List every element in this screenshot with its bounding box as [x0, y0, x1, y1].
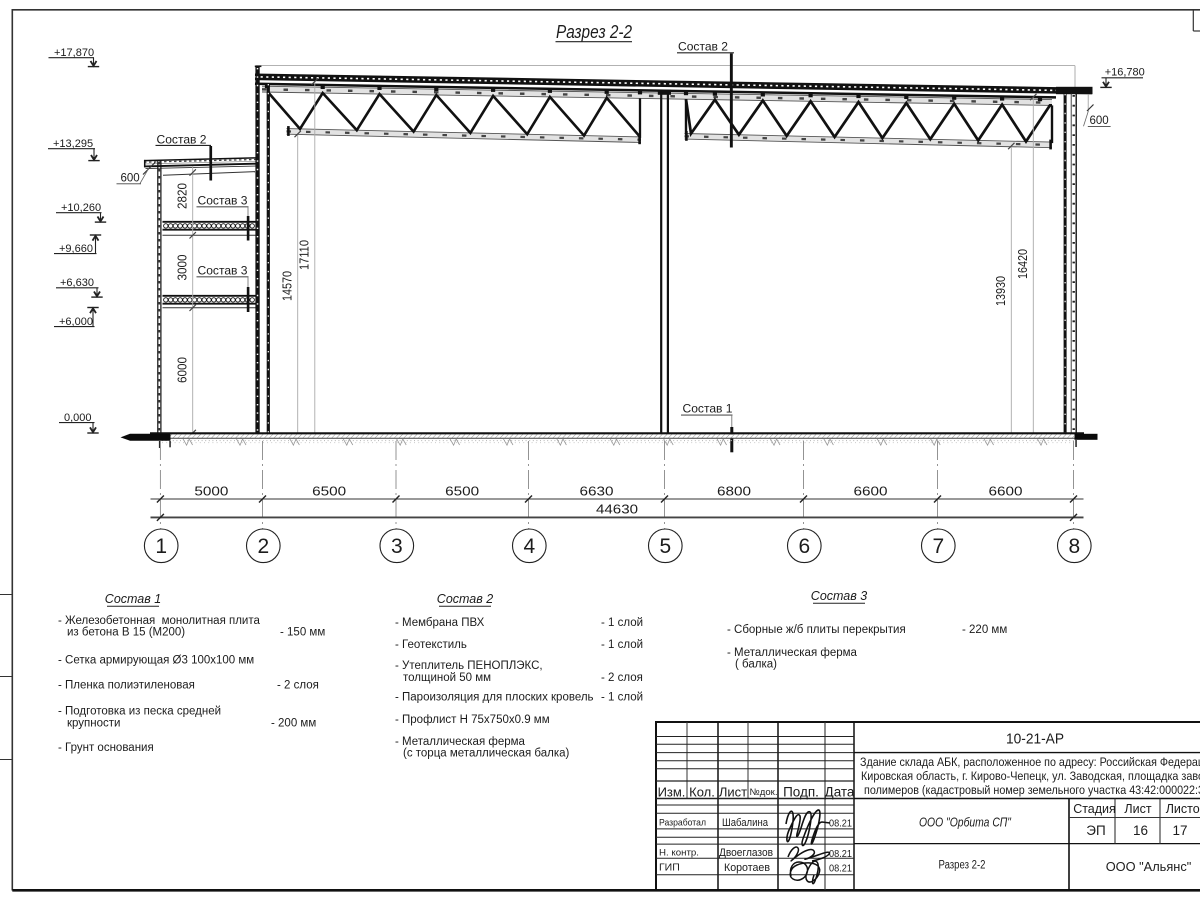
svg-text:Состав 3: Состав 3 — [811, 589, 867, 603]
svg-text:Стадия: Стадия — [1073, 802, 1116, 816]
svg-text:Разрез 2-2: Разрез 2-2 — [556, 21, 633, 42]
svg-text:- 220 мм: - 220 мм — [962, 624, 1007, 636]
svg-text:Двоеглазов: Двоеглазов — [719, 847, 773, 859]
svg-text:- Сетка армирующая Ø3 100х100: - Сетка армирующая Ø3 100х100 мм — [58, 655, 254, 667]
svg-text:- Сборные ж/б плиты перекрытия: - Сборные ж/б плиты перекрытия — [727, 624, 906, 636]
svg-text:- Утеплитель ПЕНОПЛЭКС,: - Утеплитель ПЕНОПЛЭКС, — [395, 660, 543, 672]
svg-text:6500: 6500 — [312, 483, 346, 498]
svg-text:ООО "Орбита СП": ООО "Орбита СП" — [919, 815, 1012, 830]
svg-text:- 1 слой: - 1 слой — [601, 639, 643, 651]
svg-text:2820: 2820 — [176, 183, 190, 209]
svg-text:08.21: 08.21 — [829, 848, 852, 860]
svg-text:- 2 слоя: - 2 слоя — [601, 672, 643, 684]
svg-text:- Железобетонная монолитная п: - Железобетонная монолитная плита — [58, 615, 260, 627]
svg-text:16: 16 — [1133, 823, 1148, 838]
svg-text:Состав 1: Состав 1 — [683, 402, 733, 416]
svg-text:Кол.: Кол. — [689, 785, 715, 800]
svg-text:600: 600 — [121, 173, 140, 185]
svg-text:толщиной 50 мм: толщиной 50 мм — [403, 672, 491, 684]
svg-text:( балка): ( балка) — [735, 659, 777, 671]
svg-text:7: 7 — [932, 535, 944, 558]
svg-text:Состав 2: Состав 2 — [678, 40, 728, 54]
svg-text:16420: 16420 — [1016, 249, 1030, 279]
svg-text:- 150 мм: - 150 мм — [280, 627, 325, 639]
svg-text:Разрез 2-2: Разрез 2-2 — [939, 860, 986, 872]
svg-text:- 200 мм: - 200 мм — [271, 718, 316, 730]
svg-text:Кировская область, г. Кирово-Ч: Кировская область, г. Кирово-Чепецк, ул.… — [861, 769, 1200, 783]
svg-text:Разработал: Разработал — [659, 818, 706, 829]
svg-text:Подп.: Подп. — [783, 785, 819, 800]
svg-text:14570: 14570 — [280, 271, 294, 301]
svg-text:Лист: Лист — [719, 785, 747, 800]
svg-text:8: 8 — [1068, 535, 1080, 558]
svg-text:6600: 6600 — [854, 483, 888, 498]
svg-text:- Пароизоляция для плоских кро: - Пароизоляция для плоских кровель — [395, 692, 594, 704]
svg-text:Изм.: Изм. — [658, 785, 686, 800]
svg-text:- Подготовка из песка средней: - Подготовка из песка средней — [58, 706, 221, 718]
svg-text:6630: 6630 — [580, 483, 614, 498]
svg-text:6800: 6800 — [717, 483, 751, 498]
svg-text:6000: 6000 — [176, 357, 190, 383]
svg-text:08.21: 08.21 — [829, 863, 852, 875]
svg-text:13930: 13930 — [994, 276, 1008, 306]
svg-text:- Металлическая ферма: - Металлическая ферма — [395, 736, 526, 748]
svg-text:- Грунт основания: - Грунт основания — [58, 742, 154, 754]
svg-text:полимеров (кадастровый номер з: полимеров (кадастровый номер земельного … — [864, 783, 1200, 797]
svg-text:6: 6 — [798, 535, 810, 558]
svg-text:- 1 слой: - 1 слой — [601, 617, 643, 629]
svg-text:3: 3 — [391, 535, 403, 558]
svg-text:6600: 6600 — [989, 483, 1023, 498]
svg-text:17: 17 — [1172, 823, 1187, 838]
svg-text:Лист: Лист — [1124, 802, 1151, 816]
svg-text:Состав 2: Состав 2 — [437, 592, 493, 606]
svg-text:Состав 1: Состав 1 — [105, 592, 161, 606]
svg-text:Листов: Листов — [1166, 802, 1200, 816]
svg-text:08.21: 08.21 — [829, 818, 852, 830]
svg-text:Коротаев: Коротаев — [724, 862, 770, 874]
svg-text:- Металлическая ферма: - Металлическая ферма — [727, 647, 858, 659]
svg-text:10-21-АР: 10-21-АР — [1006, 731, 1064, 748]
svg-text:5: 5 — [659, 535, 671, 558]
svg-text:+16,780: +16,780 — [1105, 67, 1145, 79]
svg-text:- 2 слоя: - 2 слоя — [277, 680, 319, 692]
svg-text:крупности: крупности — [67, 718, 120, 730]
svg-text:5000: 5000 — [194, 483, 228, 498]
svg-text:№док.: №док. — [750, 787, 778, 798]
svg-text:- Пленка полиэтиленовая: - Пленка полиэтиленовая — [58, 680, 195, 692]
svg-text:17110: 17110 — [298, 240, 312, 270]
svg-text:Дата: Дата — [825, 785, 855, 800]
svg-text:Здание склада АБК, расположенн: Здание склада АБК, расположенное по адре… — [860, 755, 1200, 769]
svg-text:ООО "Альянс": ООО "Альянс" — [1106, 859, 1192, 874]
svg-text:ГИП: ГИП — [659, 862, 680, 874]
svg-text:6500: 6500 — [445, 483, 479, 498]
svg-text:- Мембрана ПВХ: - Мембрана ПВХ — [395, 617, 485, 629]
svg-text:из бетона В 15 (М200): из бетона В 15 (М200) — [67, 627, 185, 639]
svg-text:44630: 44630 — [596, 501, 638, 516]
svg-text:- 1 слой: - 1 слой — [601, 692, 643, 704]
svg-text:3000: 3000 — [176, 254, 190, 280]
svg-text:Состав 2: Состав 2 — [157, 133, 207, 147]
svg-text:- Профлист Н 75х750х0.9 мм: - Профлист Н 75х750х0.9 мм — [395, 714, 550, 726]
svg-text:Состав 3: Состав 3 — [198, 264, 248, 278]
svg-text:(с торца металлическая балка): (с торца металлическая балка) — [403, 748, 570, 760]
svg-text:4: 4 — [523, 535, 535, 558]
svg-text:2: 2 — [257, 535, 269, 558]
svg-text:Состав 3: Состав 3 — [198, 194, 248, 208]
svg-text:ЭП: ЭП — [1086, 823, 1105, 838]
svg-text:+6,630: +6,630 — [60, 277, 94, 289]
svg-text:Шабалина: Шабалина — [722, 817, 769, 829]
svg-text:1: 1 — [155, 535, 167, 558]
svg-text:Н. контр.: Н. контр. — [659, 848, 699, 859]
svg-text:- Геотекстиль: - Геотекстиль — [395, 639, 467, 651]
svg-text:600: 600 — [1090, 115, 1109, 127]
